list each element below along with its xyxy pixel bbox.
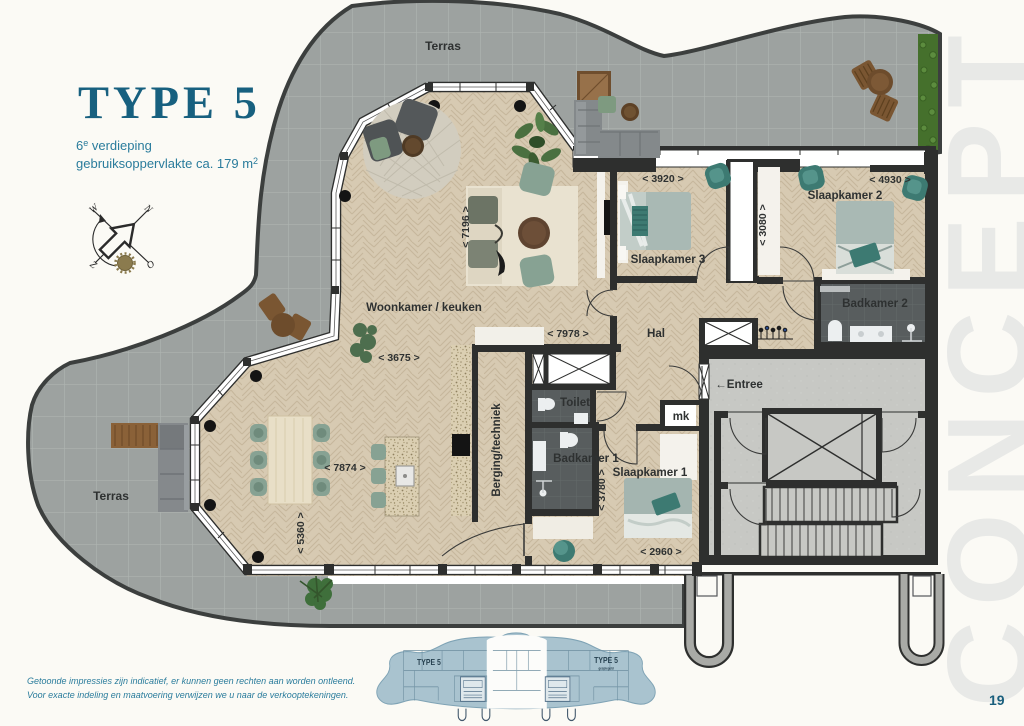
svg-text:< 7196 >: < 7196 > — [460, 206, 472, 247]
svg-text:Terras: Terras — [93, 489, 129, 503]
svg-text:6e verdieping: 6e verdieping — [76, 138, 152, 153]
svg-text:Slaapkamer 1: Slaapkamer 1 — [613, 466, 688, 479]
svg-text:Terras: Terras — [425, 39, 461, 53]
svg-text:Hal: Hal — [647, 327, 665, 340]
svg-text:Voor exacte indeling en maatvo: Voor exacte indeling en maatvoering verw… — [27, 690, 348, 700]
svg-text:←Entree: ←Entree — [715, 378, 763, 391]
svg-text:Getoonde impressies zijn indic: Getoonde impressies zijn indicatief, er … — [27, 676, 355, 686]
svg-text:mk: mk — [673, 411, 690, 423]
svg-text:< 3780 >: < 3780 > — [596, 469, 608, 510]
svg-text:gespiegeld: gespiegeld — [598, 666, 613, 670]
svg-text:< 2960 >: < 2960 > — [640, 546, 681, 558]
svg-text:Badkamer 1: Badkamer 1 — [553, 452, 619, 465]
svg-text:Toilet: Toilet — [560, 396, 590, 409]
svg-text:Badkamer 2: Badkamer 2 — [842, 297, 908, 310]
svg-text:< 4930 >: < 4930 > — [869, 174, 910, 186]
svg-text:< 3920 >: < 3920 > — [642, 173, 683, 185]
svg-text:Slaapkamer 3: Slaapkamer 3 — [631, 253, 706, 266]
svg-text:TYPE 5: TYPE 5 — [78, 78, 261, 129]
svg-text:Berging/techniek: Berging/techniek — [491, 403, 503, 497]
svg-text:< 7978 >: < 7978 > — [547, 328, 588, 340]
svg-text:19: 19 — [989, 692, 1005, 708]
svg-text:Woonkamer / keuken: Woonkamer / keuken — [366, 301, 482, 314]
svg-text:Slaapkamer 2: Slaapkamer 2 — [808, 189, 883, 202]
svg-text:< 5360 >: < 5360 > — [295, 512, 307, 553]
svg-text:TYPE 5: TYPE 5 — [594, 656, 618, 666]
svg-text:< 3675 >: < 3675 > — [378, 352, 419, 364]
svg-text:< 7874 >: < 7874 > — [324, 462, 365, 474]
svg-text:TYPE 5: TYPE 5 — [417, 657, 441, 667]
svg-text:< 3080 >: < 3080 > — [757, 204, 769, 245]
svg-text:gebruiksoppervlakte ca. 179 m2: gebruiksoppervlakte ca. 179 m2 — [76, 156, 258, 171]
